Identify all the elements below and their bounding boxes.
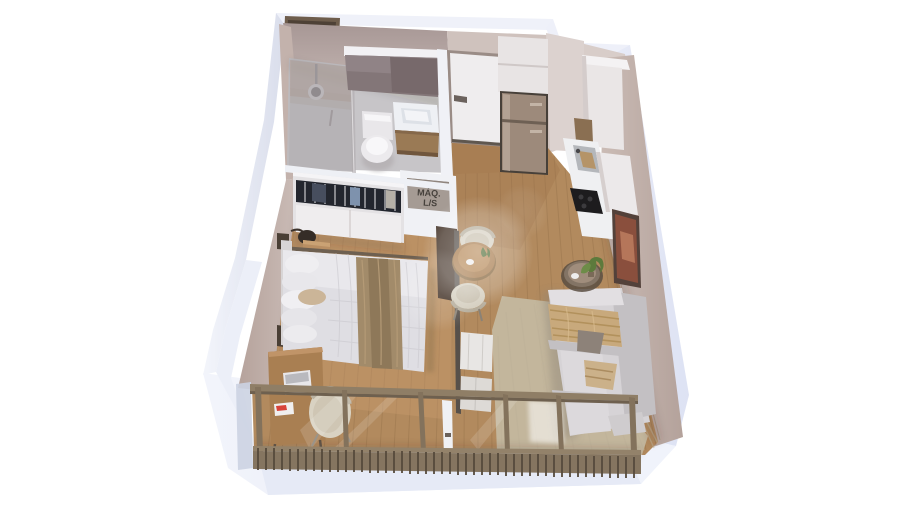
svg-text:L/S: L/S xyxy=(423,198,438,209)
